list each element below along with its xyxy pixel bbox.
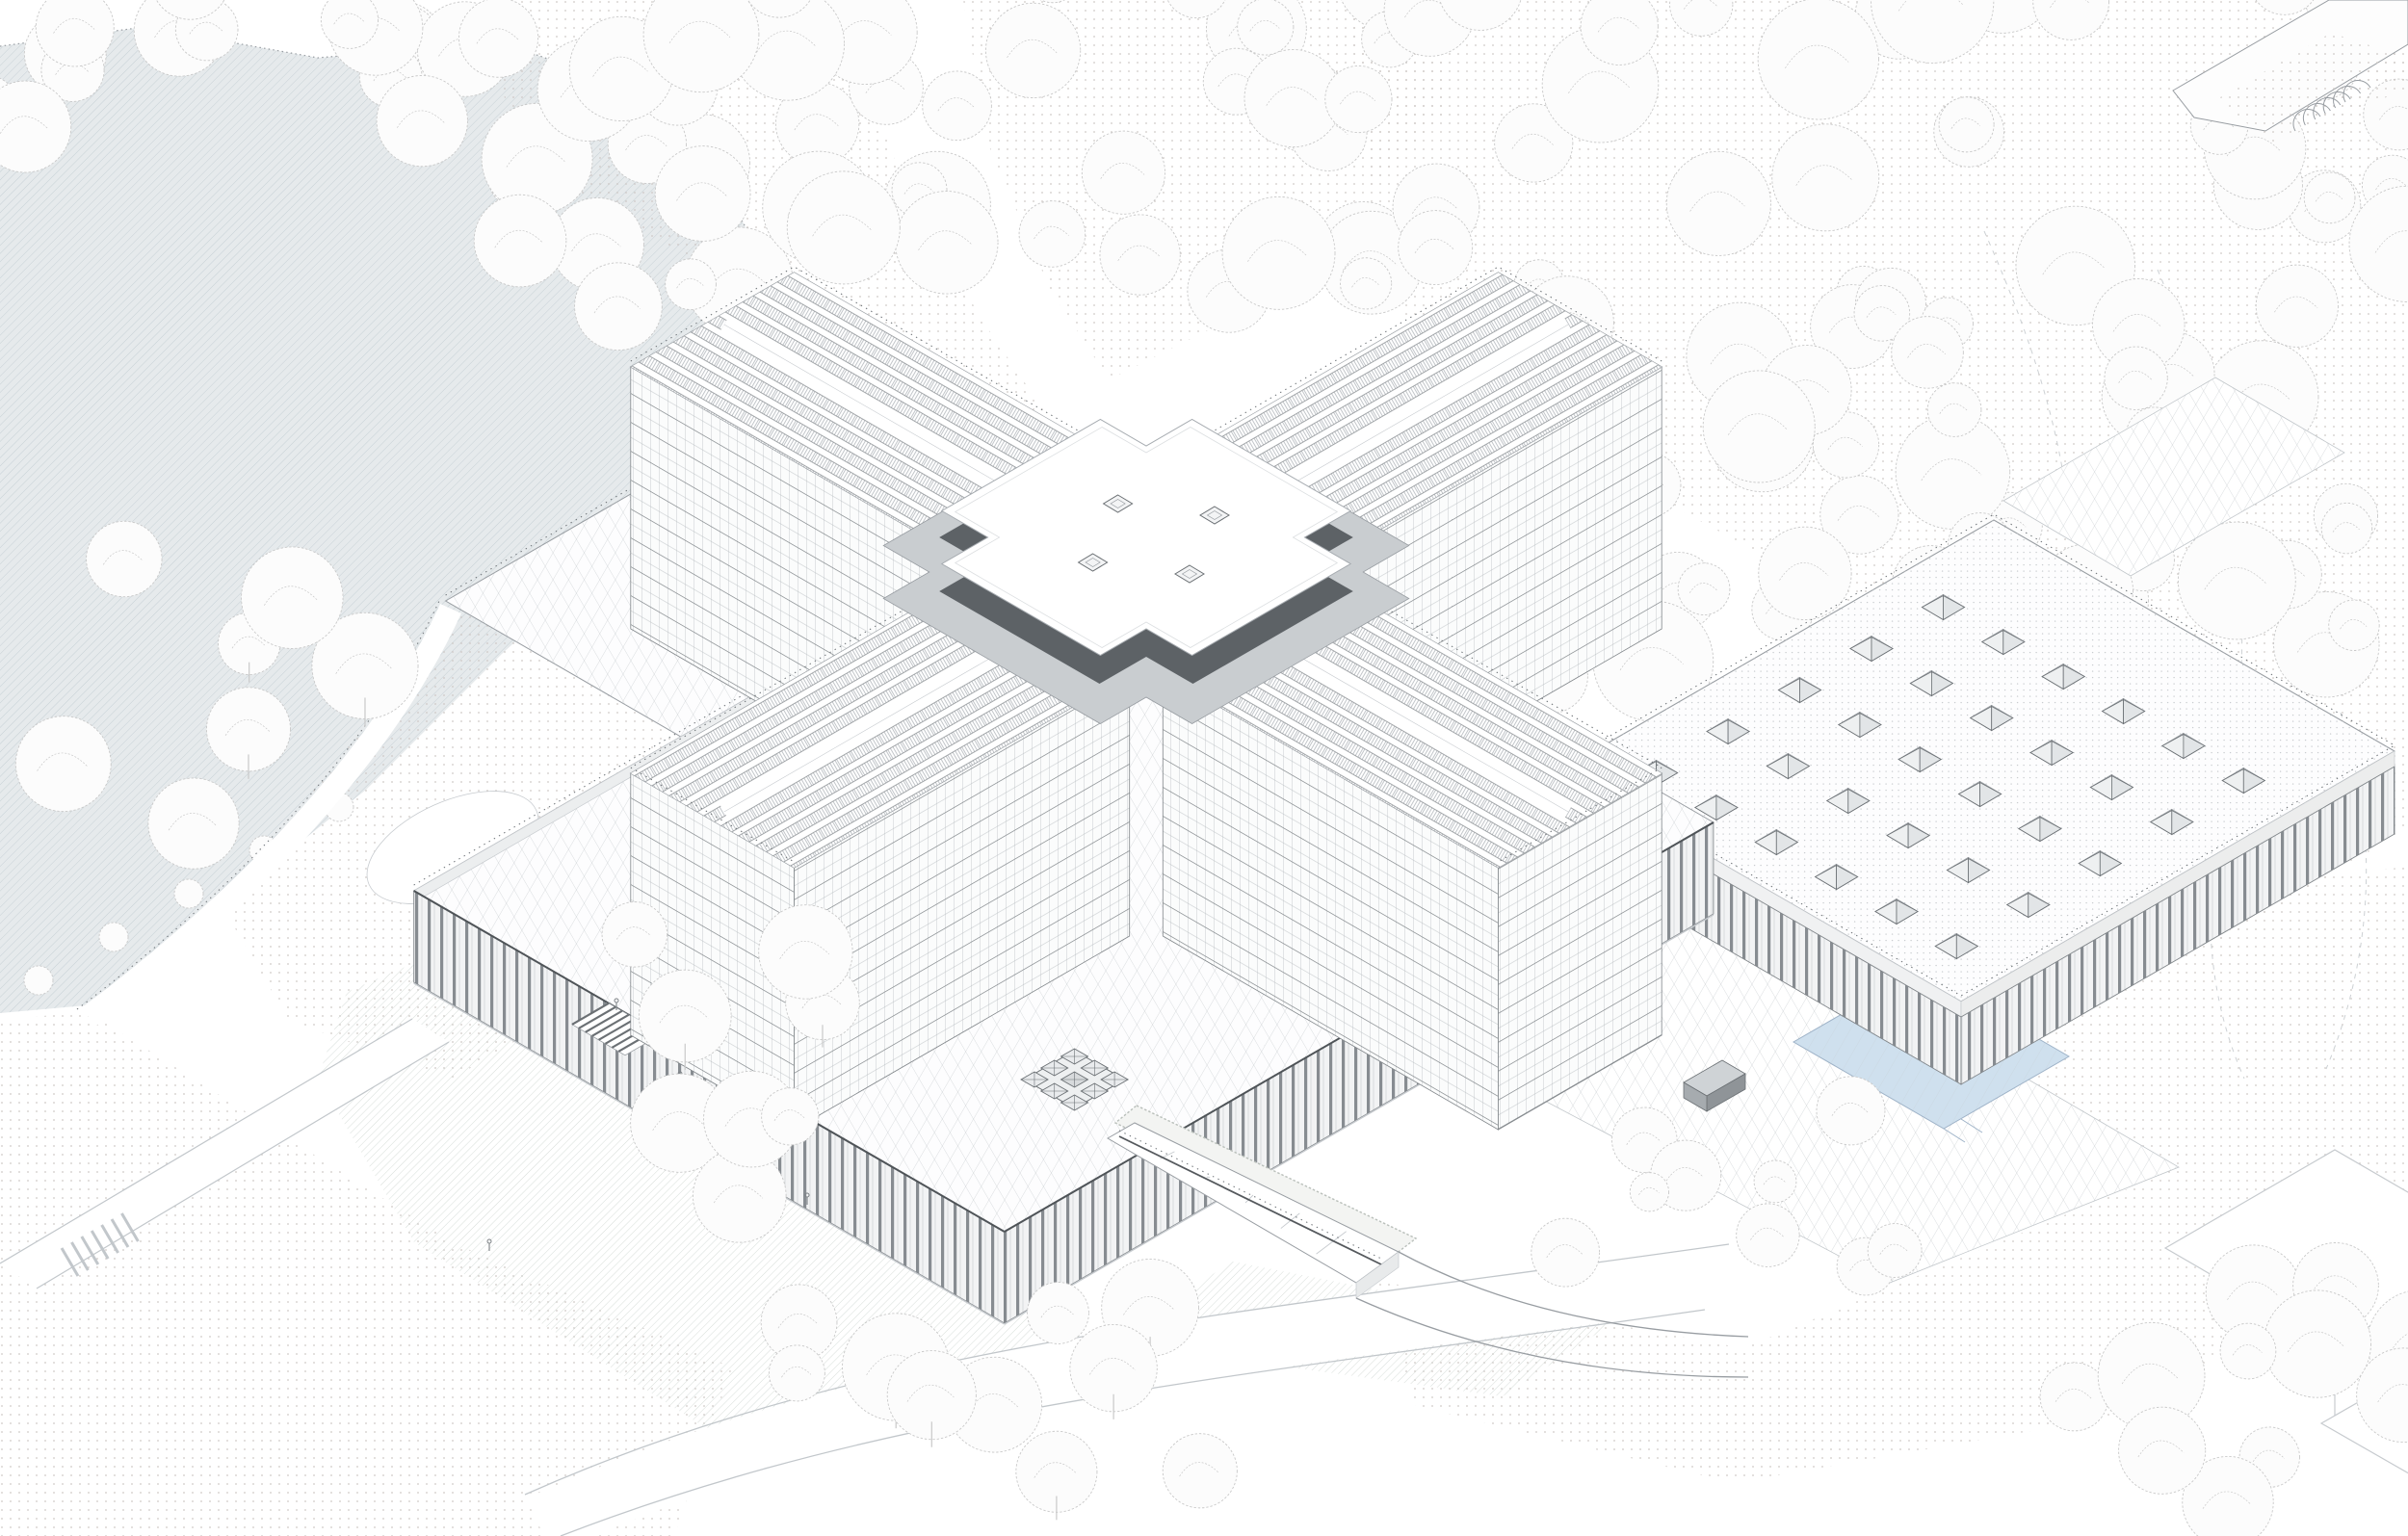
tree	[1531, 1218, 1600, 1287]
tree	[1868, 1224, 1922, 1278]
tree	[2304, 172, 2355, 223]
tree	[1325, 65, 1392, 132]
tree	[602, 902, 667, 968]
tree	[1222, 196, 1335, 309]
tree	[2321, 503, 2372, 554]
tree	[1019, 201, 1086, 268]
tree	[87, 521, 162, 596]
tree	[1238, 0, 1294, 55]
tree	[666, 259, 717, 310]
tree	[1028, 1282, 1089, 1343]
tree	[1666, 151, 1770, 255]
tree	[1399, 211, 1473, 285]
drawing-canvas	[0, 0, 2408, 1536]
tree	[1759, 527, 1851, 619]
tree	[762, 1088, 819, 1145]
tree	[787, 171, 900, 284]
tree	[377, 75, 467, 166]
tree	[923, 71, 992, 141]
tree	[1082, 131, 1165, 214]
site-axonometric-drawing: Axonometric site drawing — cruciform tow…	[0, 0, 2408, 1536]
tree	[2256, 265, 2338, 347]
tree	[1703, 371, 1815, 482]
tree	[1772, 124, 1879, 231]
tree	[1737, 1204, 1799, 1266]
tree	[769, 1345, 824, 1401]
tree	[15, 716, 111, 812]
tree	[148, 778, 239, 869]
tree	[655, 146, 750, 242]
tree	[1341, 258, 1392, 309]
tree	[2119, 1407, 2206, 1494]
tree	[1892, 317, 1964, 389]
tree	[759, 905, 852, 999]
road-tree	[99, 923, 128, 951]
tree	[1817, 1077, 1885, 1145]
tree	[2264, 1290, 2370, 1397]
road-tree	[174, 879, 203, 908]
tree	[1678, 563, 1730, 615]
tree	[1163, 1434, 1237, 1508]
tree	[2178, 522, 2295, 639]
tree	[896, 192, 999, 295]
tree	[1758, 0, 1878, 119]
tree	[2105, 347, 2167, 409]
tree	[242, 547, 343, 648]
tree	[1100, 215, 1180, 295]
tree	[458, 0, 537, 77]
road-tree	[24, 966, 53, 995]
tree	[474, 195, 566, 287]
tree	[1754, 1160, 1796, 1203]
tree	[1927, 383, 1981, 437]
tree	[2329, 600, 2379, 650]
tree	[985, 3, 1080, 97]
tree	[1939, 97, 1994, 152]
tree	[2220, 1323, 2276, 1379]
tree	[1630, 1173, 1668, 1211]
tree	[575, 263, 663, 351]
